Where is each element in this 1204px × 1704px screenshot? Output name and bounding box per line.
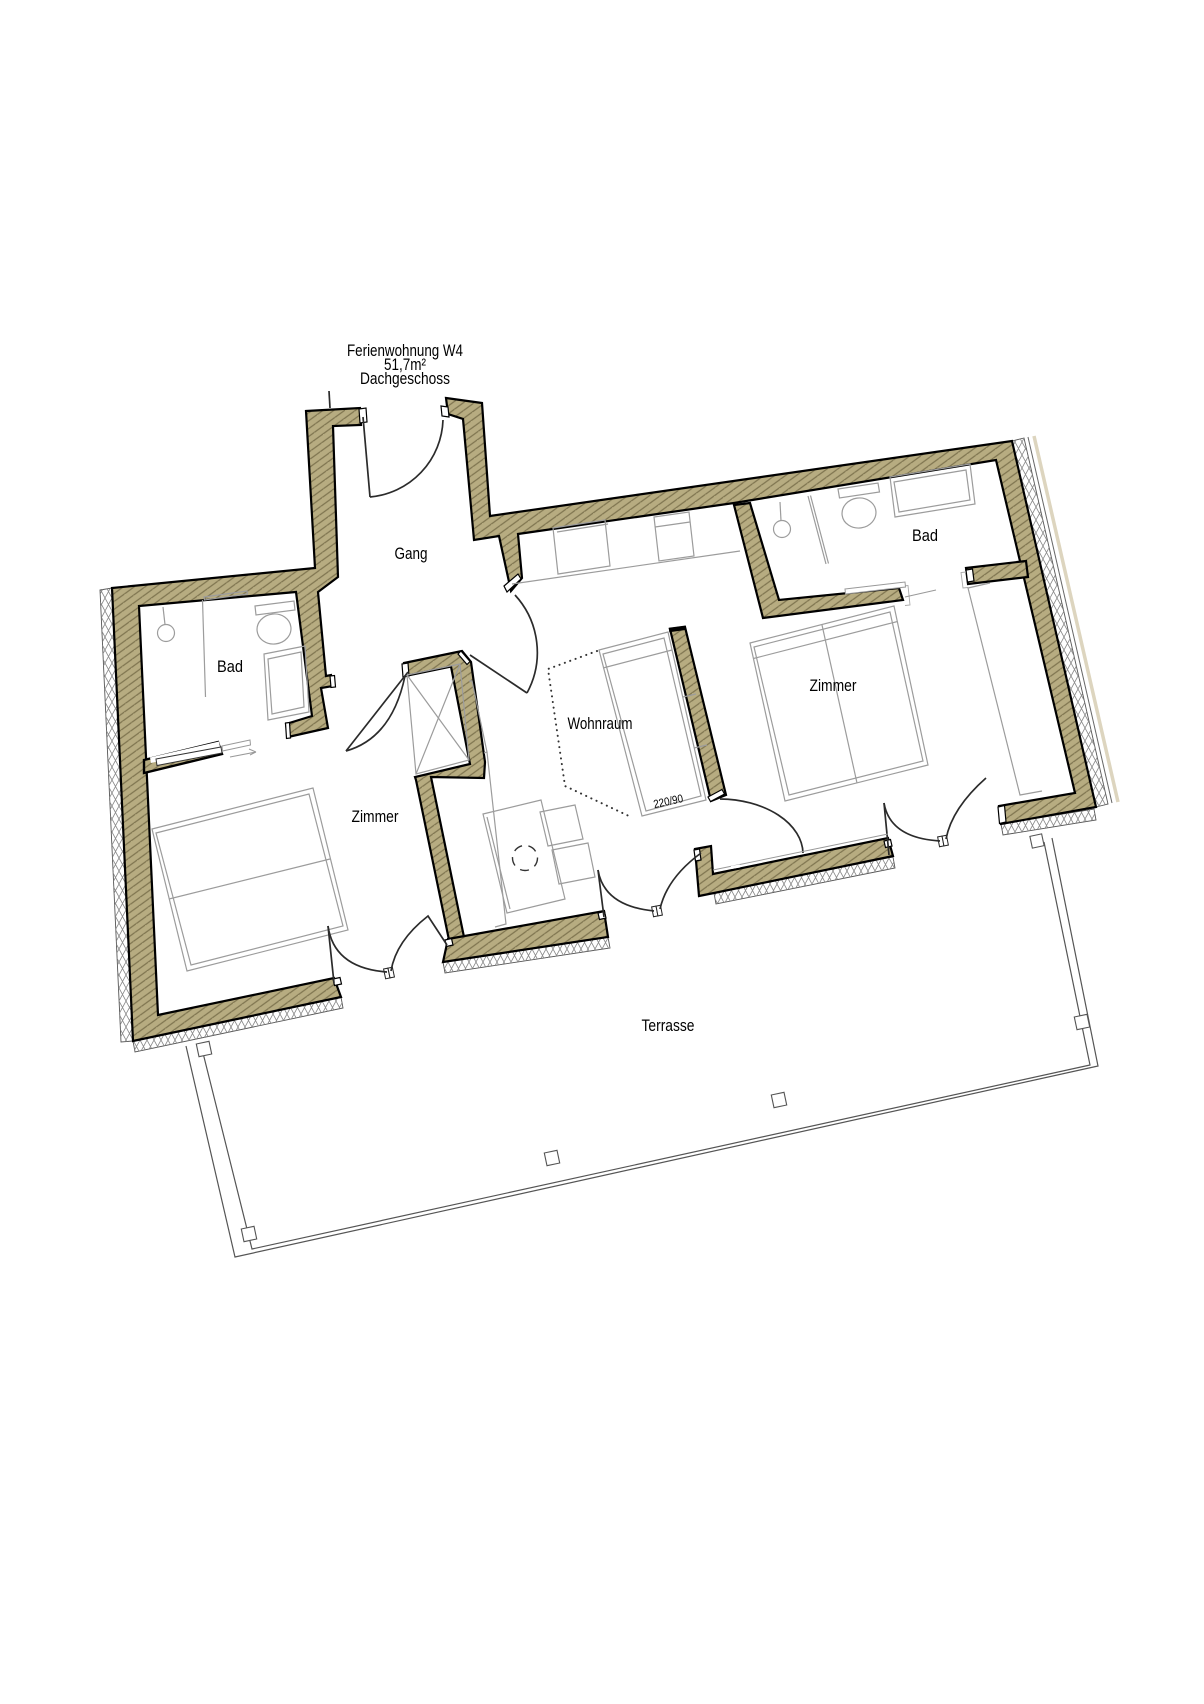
svg-text:Terrasse: Terrasse xyxy=(642,1016,695,1035)
svg-text:Dachgeschoss: Dachgeschoss xyxy=(360,369,450,388)
svg-text:Gang: Gang xyxy=(395,544,428,563)
svg-text:Zimmer: Zimmer xyxy=(352,807,399,826)
svg-text:Wohnraum: Wohnraum xyxy=(568,714,633,733)
svg-text:Zimmer: Zimmer xyxy=(810,676,857,695)
svg-text:Bad: Bad xyxy=(912,526,938,545)
svg-text:Bad: Bad xyxy=(217,657,243,676)
